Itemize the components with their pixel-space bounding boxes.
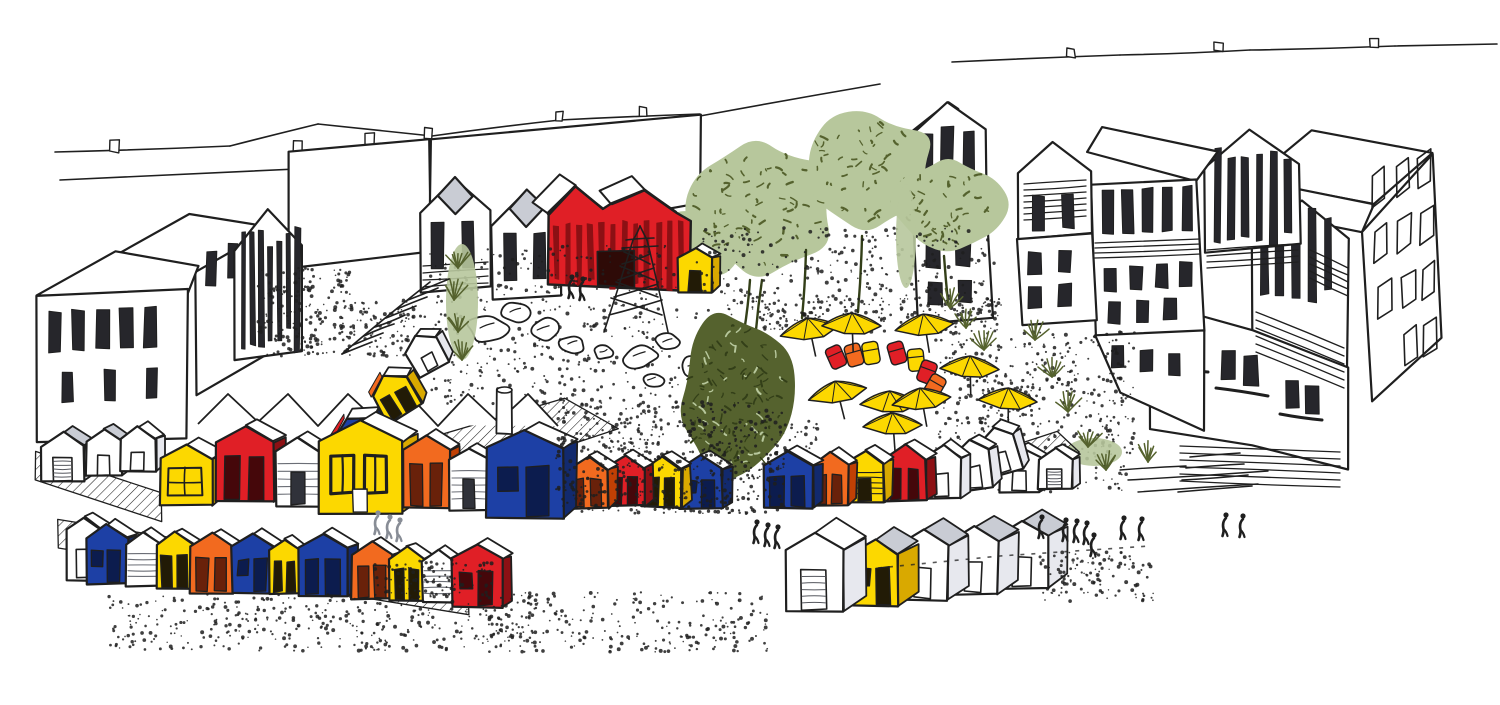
boulder xyxy=(644,374,665,387)
sketch-canvas xyxy=(0,0,1500,705)
deck-chair xyxy=(861,341,881,365)
masterplan-illustration xyxy=(0,0,1500,705)
building-right-gable-striped-top xyxy=(1017,142,1097,325)
